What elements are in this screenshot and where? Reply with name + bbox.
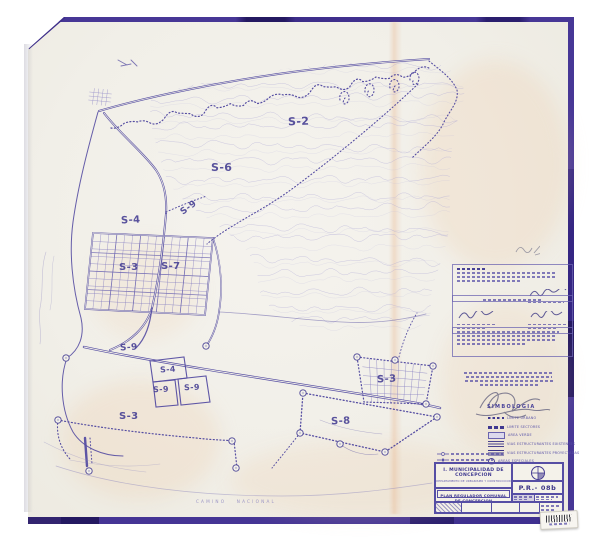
- mini-legend-row: [437, 452, 503, 456]
- redacted-text-line: [483, 299, 543, 301]
- zone-label: S-7: [161, 261, 181, 272]
- zone-label: S-3: [119, 262, 139, 273]
- legend-item: LIMITE URBANO: [488, 415, 536, 421]
- redacted-text-line: [536, 499, 552, 501]
- redacted-text-line: [466, 376, 552, 378]
- redacted-text-line: [457, 280, 521, 282]
- redacted-text-line: [457, 324, 495, 326]
- approval-note-box-3: [452, 327, 573, 357]
- contour-lines: [146, 62, 468, 334]
- redacted-heading: [457, 268, 487, 270]
- legend-label: LIMITE SECTORES: [507, 425, 540, 429]
- zone-label: S-9: [184, 383, 200, 393]
- sheet-code: P.R.- 08b: [513, 482, 562, 492]
- striped-road-swatch: [488, 441, 504, 447]
- meta-cells: [512, 494, 563, 502]
- legend-label: AREA VERDE: [508, 433, 532, 437]
- zone-label: S-9: [120, 343, 138, 354]
- municipal-seal-icon: [513, 464, 563, 481]
- department-subtitle: DEPARTAMENTO DE URBANISMO Y CONSTRUCCION: [436, 480, 511, 483]
- redacted-text-line: [457, 272, 557, 274]
- pencil-scribble-icon: [514, 242, 540, 258]
- scanned-map-page: S-2 S-6 S-9 S-4 S-3 S-7 S-9 S-4 S-9 S-9 …: [0, 0, 600, 553]
- signature-cell: [462, 503, 492, 512]
- zone-label: S-4: [121, 214, 141, 226]
- legend-item: LIMITE SECTORES: [488, 424, 540, 430]
- signature-block: [528, 305, 568, 330]
- zone-label: S-6: [211, 161, 232, 174]
- legend-item: AREA VERDE: [488, 432, 532, 438]
- redacted-text-line: [549, 522, 569, 525]
- logo-cell: [512, 463, 563, 481]
- dash-circle-icon: [437, 452, 449, 456]
- zone-label: S-8: [331, 416, 351, 428]
- redacted-text-line: [536, 496, 558, 498]
- meta-cell: [513, 495, 535, 501]
- redacted-text-line: [457, 276, 555, 278]
- signature-block: [457, 305, 497, 330]
- plan-title: PLAN REGULADOR COMUNAL DE CONCEPCION: [437, 490, 510, 498]
- barcode-icon: [546, 514, 572, 522]
- zone-label: S-9: [153, 385, 169, 395]
- zone-label: S-2: [288, 115, 310, 129]
- legend-label: VIAS ESTRUCTURANTES EXISTENTES: [507, 442, 575, 446]
- hatched-cell: [436, 503, 462, 512]
- legend-label: VIAS ESTRUCTURANTES PROYECTADAS: [507, 451, 579, 455]
- redacted-text-line: [457, 331, 559, 333]
- plan-title-cell: PLAN REGULADOR COMUNAL DE CONCEPCION: [435, 488, 512, 502]
- title-block-header: I. MUNICIPALIDAD DE CONCEPCION DEPARTAME…: [435, 463, 512, 488]
- redacted-text-line: [464, 372, 554, 374]
- redacted-text-line: [451, 453, 503, 455]
- legend-heading: SIMBOLOGIA: [487, 404, 536, 410]
- legend-label: LIMITE URBANO: [507, 416, 536, 420]
- signature-cell: [492, 503, 520, 512]
- redacted-text-line: [457, 339, 557, 341]
- zone-label: S-3: [119, 411, 139, 422]
- survey-point-markers: [55, 343, 440, 474]
- signature-cell: [520, 503, 540, 512]
- municipality-title: I. MUNICIPALIDAD DE CONCEPCION: [436, 468, 511, 478]
- redacted-text-line: [457, 335, 555, 337]
- signature-icon: [457, 311, 497, 320]
- title-block: I. MUNICIPALIDAD DE CONCEPCION DEPARTAME…: [434, 462, 564, 514]
- dotted-line-swatch: [488, 417, 504, 420]
- meta-cell: [535, 495, 562, 501]
- redacted-text-line: [451, 459, 493, 461]
- legend-item: VIAS ESTRUCTURANTES EXISTENTES: [488, 441, 575, 447]
- zone-label: S-4: [160, 364, 176, 374]
- bottom-caption: CAMINO NACIONAL: [176, 499, 296, 504]
- redacted-text-line: [465, 380, 553, 382]
- redacted-text-line: [528, 324, 566, 326]
- green-area-swatch: [488, 432, 505, 439]
- dashed-line-swatch: [488, 426, 504, 429]
- sheet-code-cell: P.R.- 08b: [512, 481, 563, 494]
- redacted-text-line: [514, 496, 532, 498]
- redacted-text-line: [541, 505, 559, 507]
- redacted-text-line: [457, 343, 525, 345]
- zone-label: S-3: [377, 373, 397, 385]
- redacted-text-line: [514, 499, 528, 501]
- barcode-sticker: [540, 510, 579, 530]
- decree-paragraph: [462, 372, 556, 386]
- signature-icon: [528, 311, 568, 320]
